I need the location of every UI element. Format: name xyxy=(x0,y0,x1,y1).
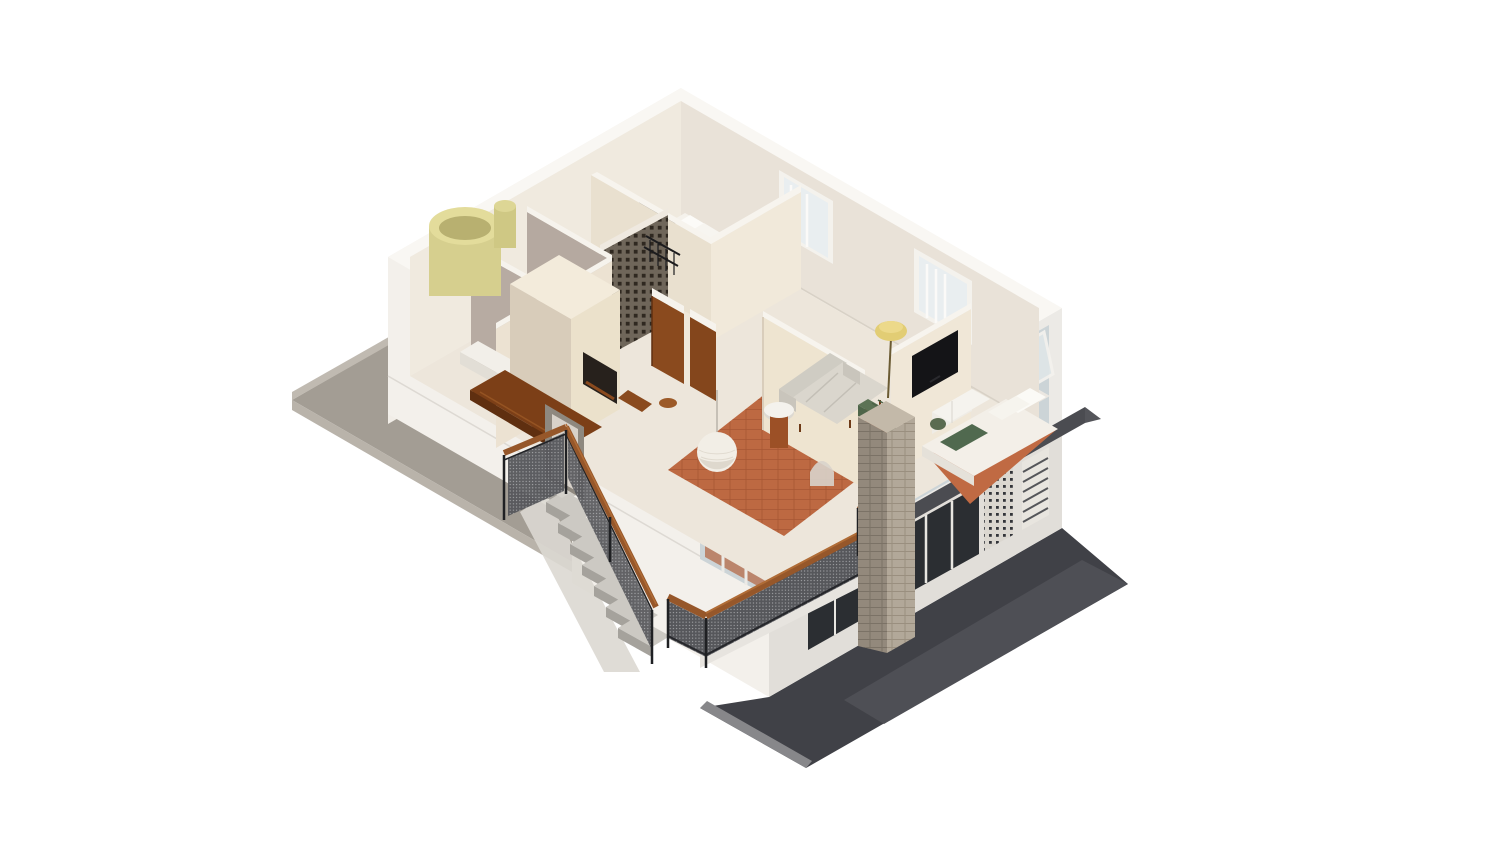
living-plant xyxy=(930,418,946,430)
render-stage xyxy=(0,0,1500,844)
chimney-courses-shade xyxy=(858,417,887,653)
shower-curtain-inner xyxy=(439,216,491,240)
hall-wall-segment xyxy=(684,311,690,385)
chimney-courses-lit xyxy=(887,417,915,653)
hall-stool xyxy=(659,398,677,408)
isometric-house-render xyxy=(0,0,1500,844)
side-table-top xyxy=(764,402,794,418)
shower-pipe-top xyxy=(494,200,516,212)
shower-pipe-side xyxy=(494,206,516,248)
floor-lamp-shade-top xyxy=(879,321,903,333)
